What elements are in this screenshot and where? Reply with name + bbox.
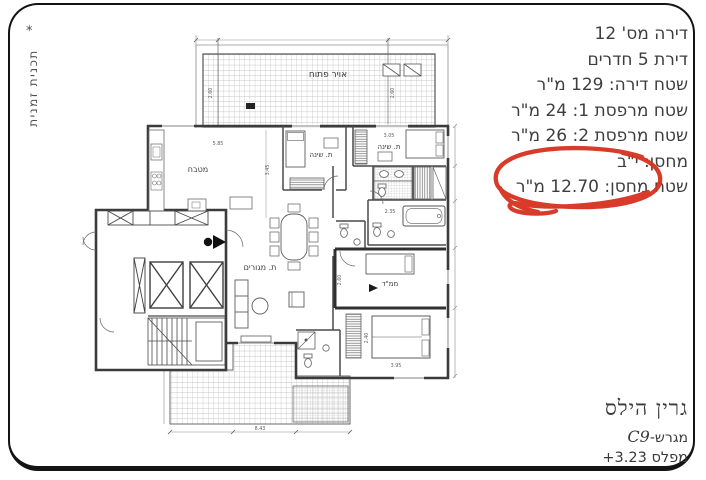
apartment-area: שטח דירה: 129 מ"ר	[438, 73, 688, 99]
project-name: גרין הילס	[602, 396, 688, 421]
side-note-marker: *	[26, 24, 33, 39]
level-label: מפלס	[651, 450, 688, 466]
storage-area-highlighted: שטח מחסן: 12.70 מ"ר	[468, 175, 688, 201]
lot-value: C9	[627, 427, 649, 446]
apartment-number: דירה מס' 12	[438, 22, 688, 48]
project-block: גרין הילס מגרש-C9 מפלס +3.23	[602, 396, 688, 466]
apartment-info-panel: דירה מס' 12 דירת 5 חדרים שטח דירה: 129 מ…	[438, 22, 688, 201]
level-line: מפלס +3.23	[602, 450, 688, 466]
apartment-rooms: דירת 5 חדרים	[438, 48, 688, 74]
lot-label: מגרש-	[650, 430, 688, 446]
balcony1-area: שטח מרפסת 1: 24 מ"ר	[438, 99, 688, 125]
side-note-text: תכנית זמנית	[26, 49, 40, 127]
balcony2-area: שטח מרפסת 2: 26 מ"ר	[438, 124, 688, 150]
level-value: +3.23	[602, 450, 646, 466]
storage-id: מחסן: י"ב	[448, 150, 688, 176]
lot-line: מגרש-C9	[602, 427, 688, 446]
